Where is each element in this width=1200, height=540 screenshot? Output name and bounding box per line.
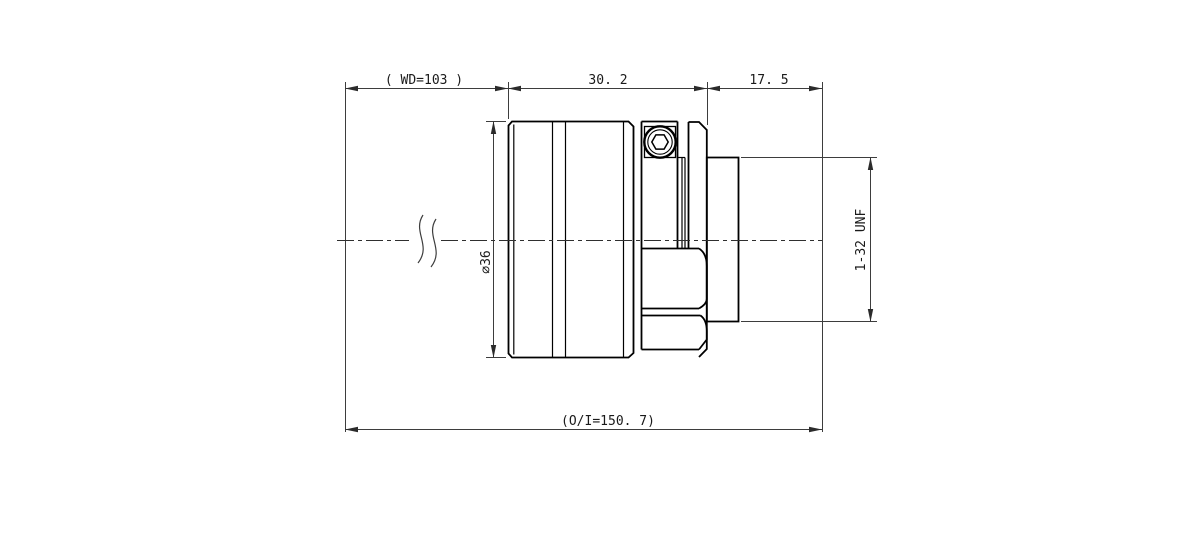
dimension-arrowheads	[345, 86, 873, 432]
centerline-group	[337, 215, 822, 267]
lens-barrel-outline	[509, 122, 634, 358]
arrow-icon	[345, 86, 358, 91]
barrel-diameter-label: ∅36	[479, 250, 494, 273]
arrow-icon	[508, 86, 521, 91]
hex-corner-arc	[699, 316, 707, 350]
set-screw-head	[644, 126, 675, 157]
body-length-label: 30. 2	[588, 73, 627, 88]
arrow-icon	[868, 309, 873, 322]
working-distance-label: ( WD=103 )	[385, 73, 463, 88]
break-symbol-icon	[431, 219, 436, 267]
overall-length-label: (O/I=150. 7)	[561, 414, 655, 429]
break-symbol-icon	[418, 215, 423, 263]
arrow-icon	[868, 157, 873, 170]
dimension-lines	[345, 82, 877, 432]
dimension-labels: ( WD=103 ) 30. 2 17. 5 (O/I=150. 7) ∅36 …	[385, 73, 869, 429]
arrow-icon	[495, 86, 508, 91]
arrow-icon	[345, 427, 358, 432]
mount-thread-cylinder	[707, 158, 739, 322]
thread-spec-label: 1-32 UNF	[854, 209, 869, 272]
arrow-icon	[809, 427, 822, 432]
arrow-icon	[491, 121, 496, 134]
lens-technical-drawing: ( WD=103 ) 30. 2 17. 5 (O/I=150. 7) ∅36 …	[0, 0, 1200, 540]
mount-length-label: 17. 5	[749, 73, 788, 88]
hex-corner-arc	[699, 249, 707, 309]
arrow-icon	[707, 86, 720, 91]
rear-flange-outline	[689, 122, 707, 357]
arrow-icon	[694, 86, 707, 91]
arrow-icon	[809, 86, 822, 91]
lens-body	[509, 122, 739, 358]
technical-drawing-canvas: ( WD=103 ) 30. 2 17. 5 (O/I=150. 7) ∅36 …	[0, 0, 1200, 540]
arrow-icon	[491, 345, 496, 358]
